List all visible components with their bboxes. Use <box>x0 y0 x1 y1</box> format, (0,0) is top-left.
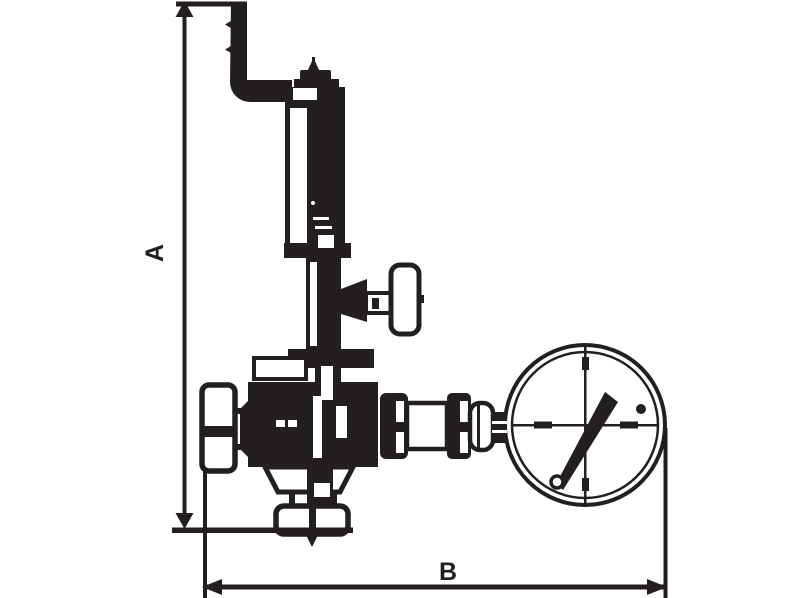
dimension-b-label: B <box>439 558 457 586</box>
valve-body <box>233 349 378 467</box>
dimension-b-right-extension <box>664 428 668 598</box>
gauge-needle <box>556 392 618 490</box>
spring-bonnet <box>284 87 351 258</box>
dimension-b-line <box>206 585 664 590</box>
inlet-knob <box>202 385 235 471</box>
dimension-a-line <box>183 12 187 517</box>
bonnet-neck <box>306 257 341 353</box>
gauge-connection-piping <box>380 393 507 459</box>
gauge-needle-tail <box>551 476 563 488</box>
technical-drawing-canvas: A B <box>0 0 800 598</box>
adjusting-screw-cap <box>294 57 339 89</box>
arrow-down-icon <box>176 513 194 529</box>
shutoff-t-handle-valve <box>341 265 424 334</box>
relief-elbow-pipe <box>225 2 292 103</box>
gauge-dial-dot <box>636 404 646 414</box>
dimension-a-label: A <box>141 244 169 262</box>
bottom-outlet <box>265 464 353 547</box>
dimension-b-left-extension <box>203 472 207 598</box>
valve-dimensional-drawing: A B <box>0 0 800 598</box>
pressure-gauge <box>505 345 665 505</box>
dimension-a-bottom-tick <box>172 528 353 534</box>
